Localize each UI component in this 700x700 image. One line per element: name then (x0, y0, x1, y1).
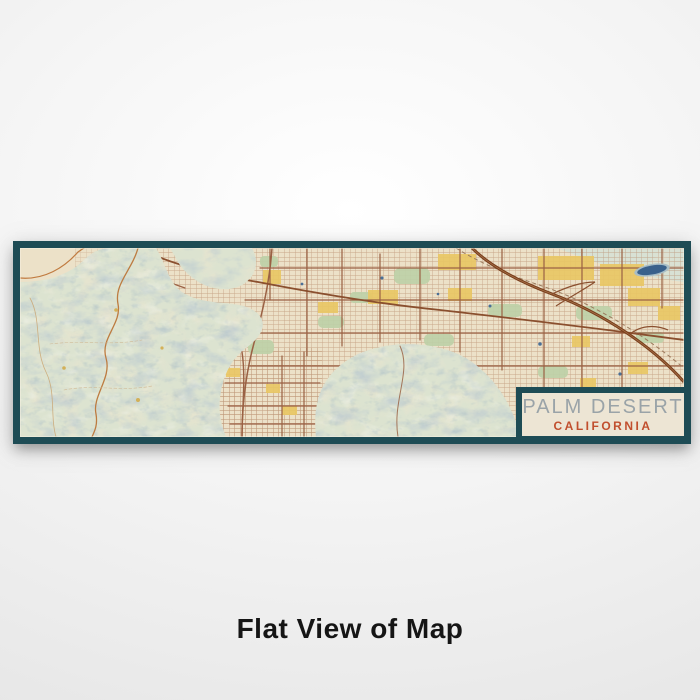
map-graphic-area: PALM DESERT CALIFORNIA Map Data ©OSM (20, 248, 684, 437)
state-name: CALIFORNIA (554, 420, 653, 432)
map-print-panel: PALM DESERT CALIFORNIA Map Data ©OSM (13, 241, 691, 444)
product-image: PALM DESERT CALIFORNIA Map Data ©OSM Fla… (0, 0, 700, 700)
map-title-card: PALM DESERT CALIFORNIA (516, 387, 684, 437)
map-title-card-inner: PALM DESERT CALIFORNIA (522, 393, 684, 436)
city-name: PALM DESERT (522, 397, 683, 417)
image-caption: Flat View of Map (0, 613, 700, 645)
